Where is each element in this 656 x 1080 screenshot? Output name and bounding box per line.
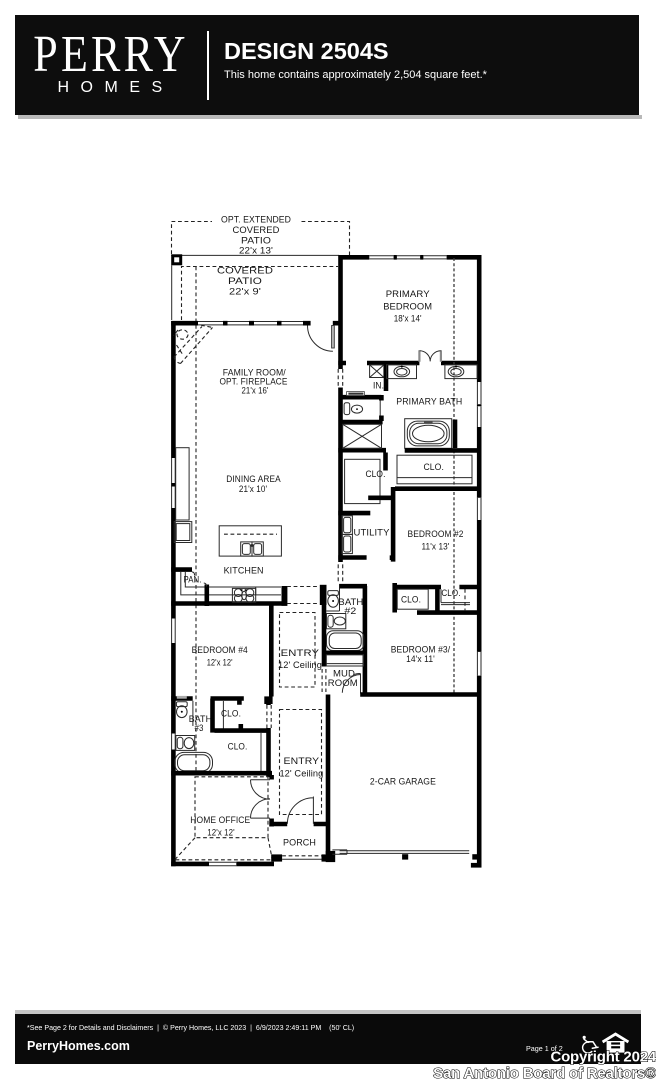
svg-text:UTILITY: UTILITY: [354, 528, 390, 539]
svg-text:14'x 11': 14'x 11': [406, 654, 435, 665]
svg-text:KITCHEN: KITCHEN: [224, 566, 264, 577]
svg-text:12' Ceiling: 12' Ceiling: [278, 660, 322, 671]
svg-text:San Antonio Board of Realtors®: San Antonio Board of Realtors®: [433, 1065, 656, 1080]
svg-text:21'x 10': 21'x 10': [239, 484, 267, 495]
svg-text:PRIMARY: PRIMARY: [386, 289, 430, 300]
svg-text:BEDROOM: BEDROOM: [383, 302, 432, 313]
svg-text:CLO.: CLO.: [221, 709, 241, 720]
svg-text:12'x 12': 12'x 12': [207, 658, 233, 669]
svg-text:CLO.: CLO.: [441, 588, 460, 599]
svg-text:22'x 9': 22'x 9': [229, 287, 261, 298]
svg-text:PRIMARY BATH: PRIMARY BATH: [396, 397, 462, 408]
svg-text:CLO.: CLO.: [423, 462, 444, 473]
svg-text:CLO.: CLO.: [401, 595, 421, 606]
svg-text:12' Ceiling: 12' Ceiling: [279, 769, 323, 780]
svg-text:ENTRY: ENTRY: [284, 756, 320, 767]
svg-text:OPT. EXTENDED: OPT. EXTENDED: [221, 215, 291, 226]
svg-text:CLO.: CLO.: [366, 469, 386, 480]
svg-text:PATIO: PATIO: [228, 276, 262, 287]
svg-text:#3: #3: [195, 723, 204, 734]
svg-text:BEDROOM #2: BEDROOM #2: [408, 529, 464, 540]
svg-text:IN.: IN.: [373, 381, 384, 392]
svg-text:21'x 16': 21'x 16': [242, 386, 269, 397]
svg-text:2-CAR GARAGE: 2-CAR GARAGE: [370, 777, 436, 788]
svg-text:Copyright 2024: Copyright 2024: [550, 1049, 656, 1066]
svg-text:ENTRY: ENTRY: [281, 648, 320, 659]
svg-text:18'x 14': 18'x 14': [394, 314, 422, 325]
svg-text:CLO.: CLO.: [228, 742, 248, 753]
svg-text:PAN.: PAN.: [184, 575, 202, 586]
svg-text:12'x 12': 12'x 12': [207, 828, 234, 839]
svg-text:COVERED: COVERED: [217, 266, 273, 277]
svg-text:BEDROOM #4: BEDROOM #4: [192, 645, 249, 656]
svg-text:HOME OFFICE: HOME OFFICE: [190, 815, 250, 826]
svg-text:22'x 13': 22'x 13': [239, 246, 273, 257]
svg-text:11'x 13': 11'x 13': [422, 542, 450, 553]
svg-text:PORCH: PORCH: [283, 838, 316, 849]
svg-text:COVERED: COVERED: [233, 225, 280, 236]
